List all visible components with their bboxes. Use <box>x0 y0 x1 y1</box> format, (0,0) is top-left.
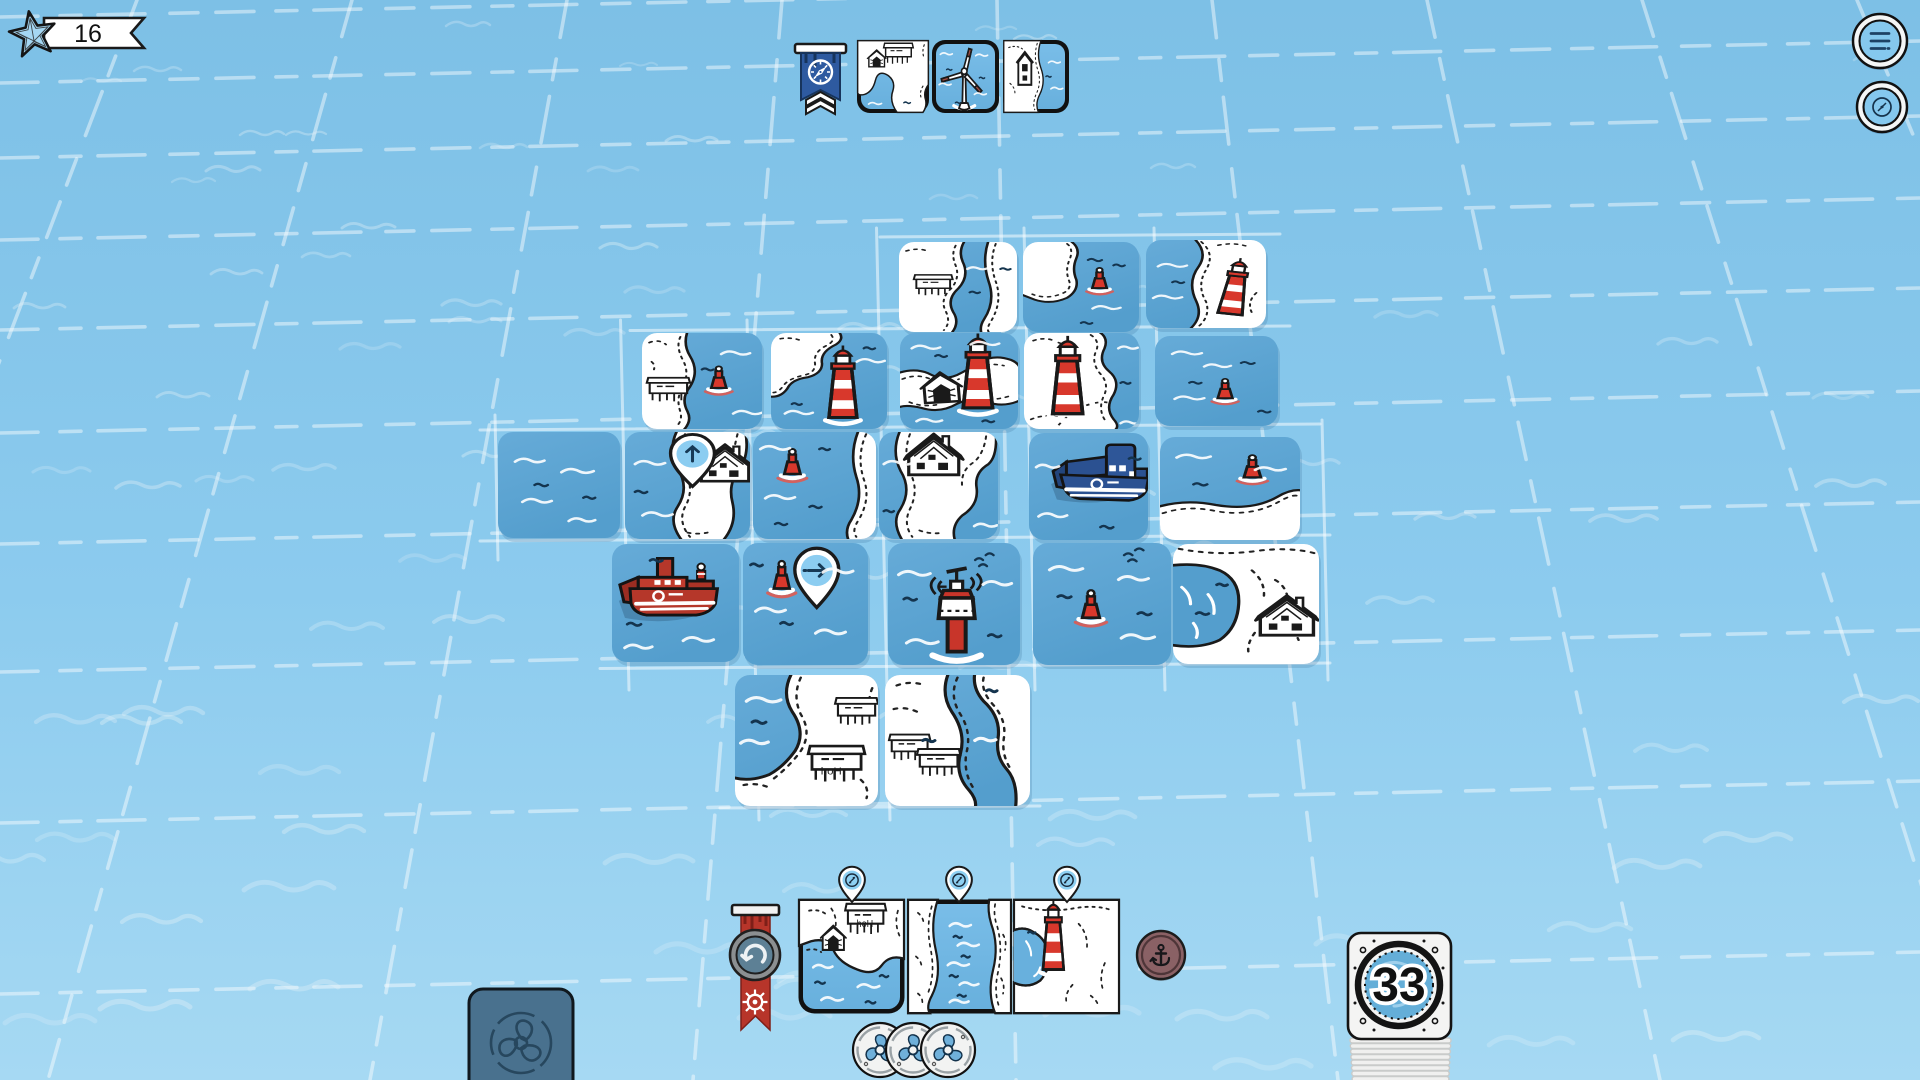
svg-text:hoH: hoH <box>821 766 842 777</box>
svg-text:16: 16 <box>74 20 102 48</box>
svg-text:33: 33 <box>1372 959 1425 1012</box>
svg-text:hoH: hoH <box>857 919 874 930</box>
